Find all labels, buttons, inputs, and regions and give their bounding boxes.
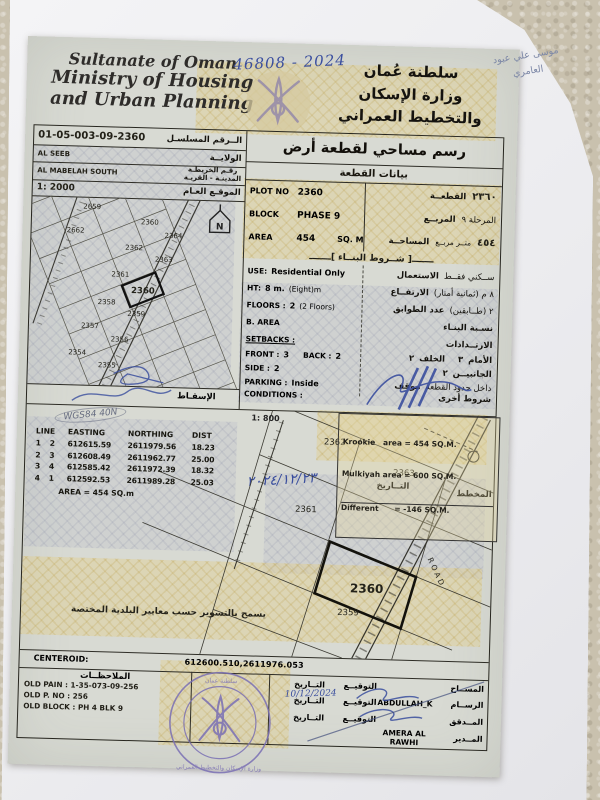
use-label: USE: (247, 266, 267, 276)
floors-label-ar: عدد الطوابق (393, 304, 445, 315)
pen-line (277, 668, 488, 750)
barea-label-ar: نسـبة البنـاء (443, 322, 493, 333)
wilayat-label-ar: الولايــة (210, 153, 242, 164)
svg-text:2354: 2354 (68, 348, 87, 357)
back-ar: ٢ (409, 353, 414, 363)
ministry-title-arabic: سلطنة عُمان وزارة الإسكان والتخطيط العمر… (326, 58, 496, 130)
svg-text:2363: 2363 (155, 256, 173, 264)
coordinates-table: LINE EASTING NORTHING DIST 12612615.5926… (34, 425, 222, 500)
side-label: SIDE : (245, 363, 270, 373)
survey-form: 01-05-003-09-2360 الــرقم المسلسـل AL SE… (16, 124, 504, 751)
town-label-ar: المدينـة - القريـة (184, 174, 242, 183)
use-value: Residential Only (271, 267, 345, 278)
parking-label: PARKING : (244, 377, 287, 387)
svg-text:2361: 2361 (295, 505, 317, 516)
area-comparison-box: Krookie area = 454 SQ.M. Mulkiyah area =… (335, 413, 500, 542)
location-mini-map: 2659 2662 2360 2364 2362 2363 2361 2360 … (27, 195, 244, 389)
back-label-ar: الخلف (419, 354, 445, 365)
centeroid-label: CENTEROID: (34, 653, 89, 664)
area-value: 454 (296, 233, 315, 244)
area-unit-ar: متــر مربــع (435, 237, 471, 247)
conditions-label: CONDITIONS : (244, 389, 303, 400)
svg-text:2662: 2662 (67, 226, 85, 234)
ministry-title-english: Sultanate of Oman Ministry of Housing an… (44, 48, 261, 114)
north-arrow-icon: N (210, 204, 231, 233)
difference-line: Different = -146 SQ.M. (341, 502, 493, 518)
serial-label-ar: الــرقم المسلسـل (167, 133, 243, 145)
col-header-line: LINE (36, 425, 68, 438)
ht-note: (Eight)m (289, 284, 322, 294)
front-label: FRONT : (245, 349, 280, 359)
setbacks-label-ar: الارتــدادات (446, 339, 493, 350)
svg-text:2356: 2356 (111, 335, 130, 344)
svg-text:سلطنة عمان: سلطنة عمان (205, 677, 237, 685)
area-ar: ٤٥٤ (477, 238, 496, 250)
svg-text:2361: 2361 (111, 270, 129, 278)
area-unit: SQ. M (337, 235, 364, 245)
svg-text:2355: 2355 (98, 361, 116, 369)
setbacks-label: SETBACKS : (246, 334, 296, 344)
pen-scribble (113, 366, 163, 385)
location-map-scale: 1: 2000 (37, 182, 75, 193)
block-ar: المرحلة ٩ (461, 215, 496, 226)
floors-note: (2 Floors) (299, 302, 335, 312)
plot-no-value: 2360 (298, 187, 323, 198)
town-value: AL MABELAH SOUTH (37, 166, 118, 176)
back-label: BACK : (303, 351, 332, 361)
krookie-area-line: Krookie area = 454 SQ.M. (343, 437, 495, 452)
plot-no-ar: ٢٣٦٠ (472, 191, 497, 203)
signature-scribble (357, 362, 478, 417)
road-label: ROAD (426, 556, 447, 589)
parking-value: Inside (291, 378, 319, 388)
back-value: 2 (335, 352, 341, 361)
svg-text:2357: 2357 (81, 322, 99, 330)
svg-text:وزارة الإسكان والتخطيط العمران: وزارة الإسكان والتخطيط العمراني (176, 763, 261, 772)
svg-text:N: N (216, 222, 224, 232)
col-header-dist: DIST (192, 430, 222, 443)
block-label: BLOCK (249, 209, 297, 219)
photo-background: موسى علي عبود العامري Sultanate of Oman … (0, 0, 600, 800)
mulkiyah-area-line: Mulkiyah area = 600 SQ.M. (342, 469, 494, 484)
area-label: AREA (248, 232, 296, 242)
serial-number: 01-05-003-09-2360 (38, 129, 145, 143)
ht-label-ar: الارتفــاع (390, 287, 429, 298)
wilayat-value: AL SEEB (38, 149, 70, 158)
title-line: and Urban Planning (44, 88, 259, 115)
side-value: 2 (274, 364, 280, 373)
front-label-ar: الأمام (468, 355, 492, 366)
krookie-survey-document: Sultanate of Oman Ministry of Housing an… (8, 36, 520, 777)
use-ar: ســكني فقــط (444, 271, 495, 282)
plot-label-ar: القطعــة (430, 191, 467, 202)
block-label-ar: المربــع (424, 214, 456, 225)
title-line-ar: والتخطيط العمراني (326, 103, 495, 130)
svg-text:2362: 2362 (125, 244, 143, 252)
official-seal-stamp: سلطنة عمان وزارة الإسكان والتخطيط العمرا… (162, 665, 277, 780)
floors-ar: ٢ (طــابقين) (449, 305, 493, 316)
svg-text:2659: 2659 (83, 203, 101, 211)
svg-text:2360: 2360 (141, 218, 159, 226)
floors-label: FLOORS : (246, 300, 285, 310)
svg-text:2359: 2359 (127, 310, 145, 318)
main-map-scale: 1: 800 (251, 413, 279, 423)
svg-text:2360: 2360 (350, 581, 384, 596)
ministry-emblem-stamp-faded (243, 68, 313, 138)
svg-text:2359: 2359 (337, 608, 359, 619)
ht-label: HT: (247, 283, 261, 292)
projection-label-ar: الإسقـاط (177, 391, 216, 402)
floors-value: 2 (290, 301, 296, 310)
svg-text:2360: 2360 (131, 286, 155, 297)
svg-text:2358: 2358 (98, 298, 116, 306)
front-value: 3 (283, 350, 289, 359)
plot-no-label: PLOT NO (250, 186, 298, 196)
block-value: PHASE 9 (297, 210, 340, 221)
barea-label: B. AREA (246, 317, 280, 327)
use-label-ar: الاستعمال (397, 270, 439, 281)
ht-ar: ٨ م (ثمانية أمتار) (434, 288, 494, 300)
area-label-ar: المساحــة (388, 236, 429, 247)
location-map-label-ar: الموقـع العـام (183, 186, 241, 198)
svg-text:2364: 2364 (164, 232, 183, 241)
ht-value: 8 m. (265, 284, 285, 294)
front-ar: ٣ (458, 355, 463, 365)
